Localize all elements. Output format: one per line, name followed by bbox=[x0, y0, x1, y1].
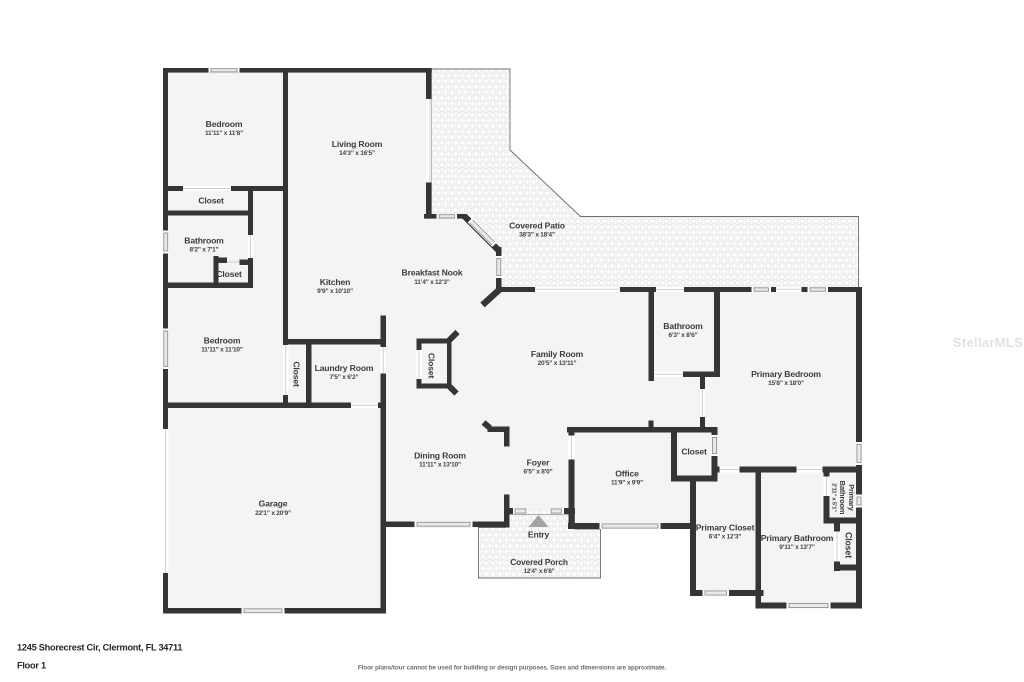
svg-text:Primary: Primary bbox=[847, 484, 856, 512]
svg-text:Entry: Entry bbox=[528, 530, 550, 540]
svg-text:7’5” x 6’2”: 7’5” x 6’2” bbox=[329, 374, 358, 381]
svg-text:9’11” x 13’7”: 9’11” x 13’7” bbox=[779, 544, 814, 551]
svg-text:Bedroom: Bedroom bbox=[204, 336, 241, 346]
svg-text:11’11” x 13’10”: 11’11” x 13’10” bbox=[419, 462, 461, 469]
svg-text:Floor plans/tour cannot be use: Floor plans/tour cannot be used for buil… bbox=[358, 665, 667, 672]
svg-text:6’5” x 8’0”: 6’5” x 8’0” bbox=[523, 469, 552, 476]
svg-text:Closet: Closet bbox=[216, 269, 242, 279]
svg-text:Closet: Closet bbox=[198, 196, 224, 206]
svg-text:StellarMLS: StellarMLS bbox=[953, 335, 1023, 350]
svg-text:14’3” x 16’5”: 14’3” x 16’5” bbox=[339, 150, 375, 157]
svg-text:9’9” x 10’10”: 9’9” x 10’10” bbox=[317, 288, 353, 295]
svg-text:Covered Porch: Covered Porch bbox=[510, 557, 568, 567]
svg-text:Bathroom: Bathroom bbox=[838, 481, 847, 515]
svg-text:Family Room: Family Room bbox=[531, 349, 584, 359]
svg-text:Garage: Garage bbox=[259, 499, 288, 509]
svg-text:15’8” x 18’0”: 15’8” x 18’0” bbox=[768, 380, 804, 387]
svg-text:11’11” x 11’10”: 11’11” x 11’10” bbox=[201, 347, 242, 354]
svg-text:Living Room: Living Room bbox=[332, 139, 383, 149]
svg-text:12’4” x 6’8”: 12’4” x 6’8” bbox=[524, 568, 555, 575]
svg-text:Primary Bathroom: Primary Bathroom bbox=[761, 533, 834, 543]
svg-text:8’2” x 7’1”: 8’2” x 7’1” bbox=[189, 247, 218, 254]
svg-text:Foyer: Foyer bbox=[527, 458, 550, 468]
svg-text:6’4” x 12’3”: 6’4” x 12’3” bbox=[709, 534, 741, 541]
svg-text:Primary Bedroom: Primary Bedroom bbox=[751, 369, 821, 379]
svg-text:Closet: Closet bbox=[681, 447, 707, 457]
svg-text:Laundry Room: Laundry Room bbox=[315, 363, 374, 373]
svg-text:Primary Closet: Primary Closet bbox=[696, 523, 755, 533]
svg-text:Bedroom: Bedroom bbox=[206, 119, 243, 129]
svg-text:Covered Patio: Covered Patio bbox=[509, 221, 565, 231]
svg-text:Closet: Closet bbox=[844, 532, 854, 558]
svg-text:Bathroom: Bathroom bbox=[663, 321, 703, 331]
svg-text:1245 Shorecrest Cir, Clermont,: 1245 Shorecrest Cir, Clermont, FL 34711 bbox=[17, 643, 182, 653]
svg-text:2’11” x 5’1”: 2’11” x 5’1” bbox=[831, 483, 837, 512]
svg-text:Dining Room: Dining Room bbox=[414, 451, 466, 461]
svg-text:11’11” x 11’8”: 11’11” x 11’8” bbox=[205, 130, 243, 137]
svg-text:Breakfast Nook: Breakfast Nook bbox=[402, 268, 463, 278]
svg-text:11’4” x 12’3”: 11’4” x 12’3” bbox=[414, 279, 449, 286]
svg-text:Kitchen: Kitchen bbox=[320, 277, 350, 287]
svg-text:Floor 1: Floor 1 bbox=[17, 661, 46, 671]
svg-text:Closet: Closet bbox=[292, 361, 302, 387]
svg-text:Bathroom: Bathroom bbox=[184, 236, 224, 246]
svg-text:Office: Office bbox=[615, 469, 639, 479]
svg-text:11’9” x 9’9”: 11’9” x 9’9” bbox=[611, 480, 643, 487]
svg-text:38’3” x 18’4”: 38’3” x 18’4” bbox=[519, 232, 555, 239]
svg-text:Closet: Closet bbox=[427, 353, 437, 379]
svg-text:22’1” x 20’9”: 22’1” x 20’9” bbox=[255, 510, 291, 517]
svg-text:20’5” x 13’11”: 20’5” x 13’11” bbox=[538, 360, 577, 367]
svg-text:6’3” x 8’6”: 6’3” x 8’6” bbox=[668, 332, 697, 339]
